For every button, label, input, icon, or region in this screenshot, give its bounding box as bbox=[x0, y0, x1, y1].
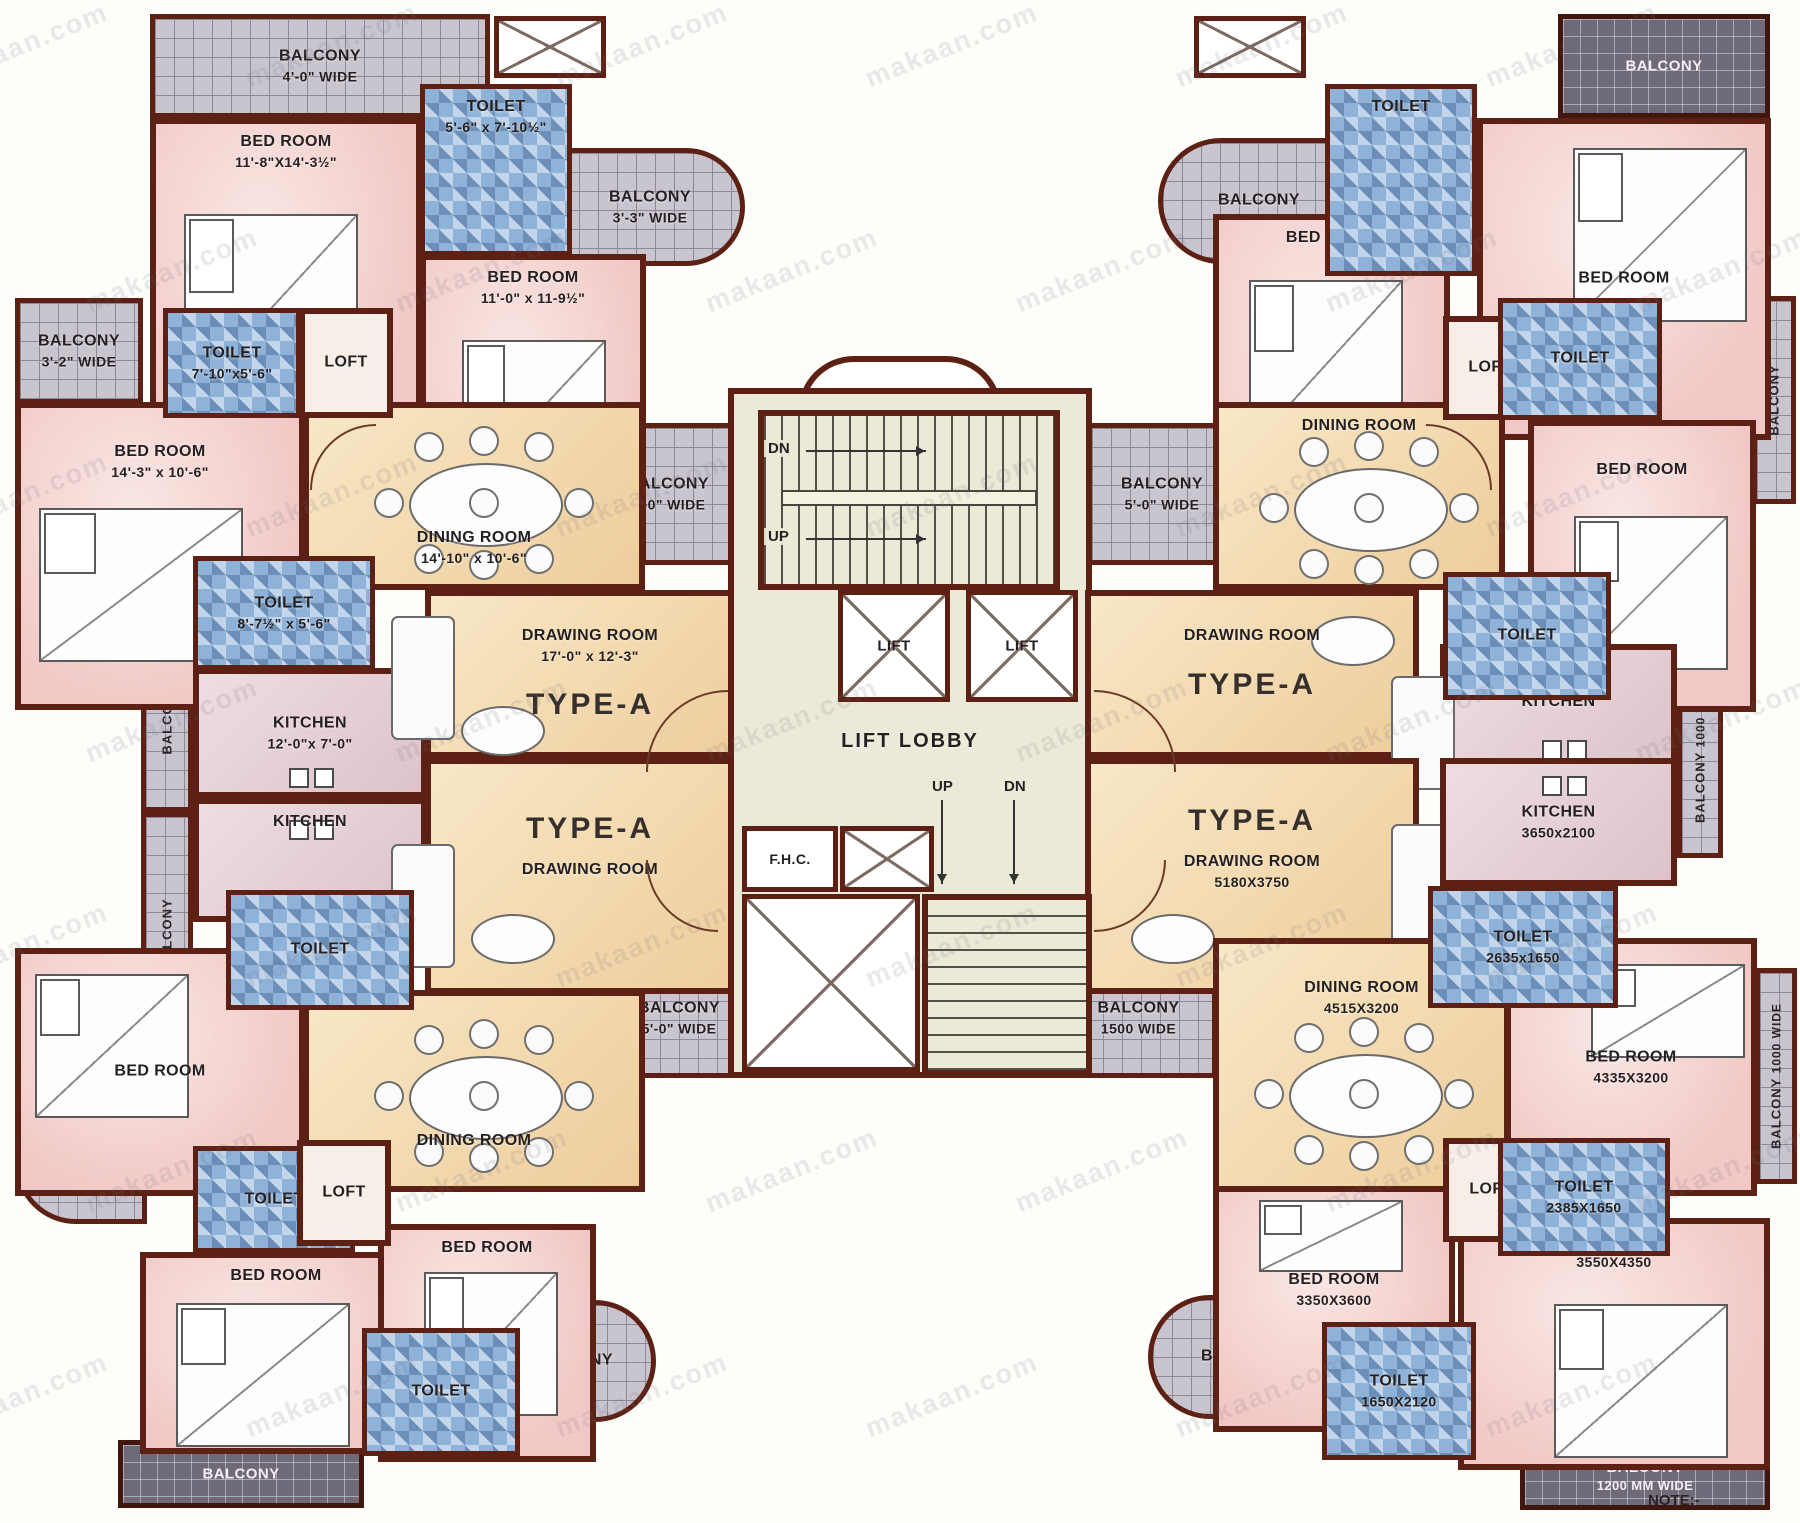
watermark-text: makaan.com bbox=[861, 1347, 1043, 1445]
toilet-tr-1: TOILET bbox=[1325, 84, 1477, 276]
fhc-box: F.H.C. bbox=[742, 826, 838, 892]
fhc-label: F.H.C. bbox=[747, 850, 833, 868]
watermark-text: makaan.com bbox=[861, 0, 1043, 94]
balcony-label: BALCONY5'-0" WIDE bbox=[1092, 475, 1232, 514]
bed-icon bbox=[1554, 1304, 1728, 1458]
dining-chairs-icon bbox=[1356, 495, 1382, 521]
room-label: LOFT bbox=[303, 1183, 385, 1204]
watermark-text: makaan.com bbox=[0, 0, 113, 94]
room-label: BED ROOM bbox=[146, 1266, 406, 1287]
toilet-bl-3: TOILET bbox=[362, 1328, 520, 1456]
toilet-tr-2: TOILET bbox=[1498, 298, 1662, 420]
unit-type-label: TYPE-A bbox=[431, 812, 749, 846]
room-label: DRAWING ROOM bbox=[1091, 626, 1413, 647]
kitchen-br: KITCHEN3650x2100 bbox=[1440, 758, 1677, 886]
room-label: LOFT bbox=[305, 353, 387, 374]
coffee-table-icon bbox=[1131, 914, 1215, 964]
pillow-icon bbox=[44, 513, 96, 574]
stair-up-label: UP bbox=[764, 528, 793, 545]
room-label: TOILET8'-7½" x 5'-6" bbox=[198, 594, 370, 633]
toilet-br-2: TOILET2385X1650 bbox=[1498, 1138, 1670, 1256]
room-label: KITCHEN3650x2100 bbox=[1446, 803, 1671, 842]
pillow-icon bbox=[181, 1308, 226, 1365]
shaft-large bbox=[742, 894, 920, 1072]
dn-arrow-icon bbox=[806, 450, 926, 452]
floor-plan: makaan.commakaan.commakaan.commakaan.com… bbox=[0, 0, 1800, 1523]
dn-arrow-icon bbox=[1013, 800, 1015, 884]
room-label: TOILET7'-10"x5'-6" bbox=[168, 344, 296, 383]
room-label: TOILET bbox=[1448, 626, 1606, 647]
duct-shaft bbox=[840, 826, 934, 892]
toilet-tl-1: TOILET5'-6" x 7'-10½" bbox=[420, 84, 572, 256]
bed-icon bbox=[35, 974, 189, 1118]
watermark-text: makaan.com bbox=[0, 1347, 113, 1445]
pillow-icon bbox=[1559, 1309, 1604, 1370]
pillow-icon bbox=[1254, 285, 1294, 352]
stair-up-label: UP bbox=[928, 778, 957, 795]
dining-chairs-icon bbox=[471, 490, 497, 516]
watermark-text: makaan.com bbox=[1011, 222, 1193, 320]
room-label: KITCHEN12'-0"x 7'-0" bbox=[199, 714, 421, 753]
balcony-label: BALCONY3'-2" WIDE bbox=[20, 332, 138, 371]
stove-icon bbox=[1542, 740, 1587, 760]
up-arrow-icon bbox=[941, 800, 943, 884]
duct-shaft bbox=[1194, 16, 1306, 78]
room-label: KITCHEN bbox=[199, 812, 421, 833]
lift-lobby-label: LIFT LOBBY bbox=[795, 728, 1025, 754]
room-label: TOILET bbox=[231, 940, 409, 961]
balcony-label: BALCONY3'-3" WIDE bbox=[560, 188, 740, 227]
watermark-text: makaan.com bbox=[1011, 1122, 1193, 1220]
toilet-tr-3: TOILET bbox=[1443, 572, 1611, 700]
toilet-tl-2: TOILET7'-10"x5'-6" bbox=[163, 308, 301, 418]
room-label: TOILET2635x1650 bbox=[1433, 928, 1613, 967]
unit-type-label: TYPE-A bbox=[1091, 668, 1413, 702]
duct-shaft bbox=[494, 16, 606, 78]
dining-chairs-icon bbox=[1351, 1081, 1377, 1107]
stove-icon bbox=[1542, 776, 1587, 796]
balcony-tl-right: BALCONY3'-3" WIDE bbox=[555, 148, 745, 266]
toilet-br-1: TOILET2635x1650 bbox=[1428, 886, 1618, 1008]
bed-icon bbox=[1259, 1200, 1403, 1272]
room-label: BED ROOM bbox=[1483, 269, 1765, 290]
room-label: TOILET2385X1650 bbox=[1503, 1178, 1665, 1217]
stair-dn-label: DN bbox=[764, 440, 794, 457]
lift-label: LIFT bbox=[971, 636, 1073, 656]
toilet-br-3: TOILET1650X2120 bbox=[1322, 1322, 1476, 1460]
loft-tl: LOFT bbox=[299, 308, 393, 418]
toilet-tl-3: TOILET8'-7½" x 5'-6" bbox=[193, 556, 375, 670]
pillow-icon bbox=[429, 1277, 464, 1334]
room-label: BED ROOM14'-3" x 10'-6" bbox=[21, 442, 299, 481]
room-label: DRAWING ROOM17'-0" x 12'-3" bbox=[431, 626, 749, 665]
staircase-upper bbox=[758, 410, 1060, 590]
balcony-label: BALCONY bbox=[1563, 56, 1765, 76]
room-label: TOILET1650X2120 bbox=[1327, 1372, 1471, 1411]
room-label: TOILET bbox=[1330, 97, 1472, 118]
lift-label: LIFT bbox=[843, 636, 945, 656]
room-label: BED ROOM11'-0" x 11-9½" bbox=[426, 268, 640, 307]
room-label: TOILET bbox=[367, 1382, 515, 1403]
bed-icon bbox=[1573, 148, 1747, 322]
lift-right: LIFT bbox=[966, 590, 1078, 702]
pillow-icon bbox=[189, 219, 234, 293]
room-label: TOILET bbox=[1503, 349, 1657, 370]
lift-left: LIFT bbox=[838, 590, 950, 702]
balcony-tr-corner: BALCONY bbox=[1558, 14, 1770, 118]
room-label: BED ROOM3350X3600 bbox=[1219, 1270, 1449, 1309]
note-label: NOTE:- bbox=[1648, 1492, 1700, 1509]
balcony-label: BALCONY 1000 WIDE bbox=[1769, 1003, 1784, 1149]
dining-tr: DINING ROOM bbox=[1213, 402, 1505, 590]
pillow-icon bbox=[1264, 1205, 1302, 1235]
watermark-text: makaan.com bbox=[701, 1122, 883, 1220]
stair-dn-label: DN bbox=[1000, 778, 1030, 795]
room-label: BED ROOM bbox=[1534, 460, 1750, 481]
unit-type-label: TYPE-A bbox=[1091, 804, 1413, 838]
loft-bl: LOFT bbox=[297, 1140, 391, 1246]
balcony-label: BALCONY4'-0" WIDE bbox=[155, 47, 485, 86]
room-label: BED ROOM11'-8"X14'-3½" bbox=[156, 132, 416, 171]
room-label: BED ROOM bbox=[384, 1238, 590, 1259]
coffee-table-icon bbox=[471, 914, 555, 964]
pillow-icon bbox=[1578, 153, 1623, 222]
up-arrow-icon bbox=[806, 538, 926, 540]
room-label: TOILET5'-6" x 7'-10½" bbox=[425, 97, 567, 136]
room-label: BED ROOM bbox=[21, 1062, 299, 1083]
toilet-bl-1: TOILET bbox=[226, 890, 414, 1010]
room-label: BED ROOM4335X3200 bbox=[1511, 1048, 1751, 1087]
balcony-br-vertical-2: BALCONY 1000 WIDE bbox=[1755, 968, 1797, 1184]
pillow-icon bbox=[40, 979, 80, 1036]
dining-chairs-icon bbox=[471, 1083, 497, 1109]
pillow-icon bbox=[467, 345, 505, 406]
staircase-lower bbox=[922, 894, 1092, 1076]
stove-icon bbox=[289, 768, 334, 788]
stair-rail bbox=[781, 490, 1036, 506]
balcony-label: BALCONY bbox=[123, 1464, 359, 1484]
balcony-tl-left: BALCONY3'-2" WIDE bbox=[15, 298, 143, 404]
bed-icon bbox=[176, 1303, 350, 1447]
